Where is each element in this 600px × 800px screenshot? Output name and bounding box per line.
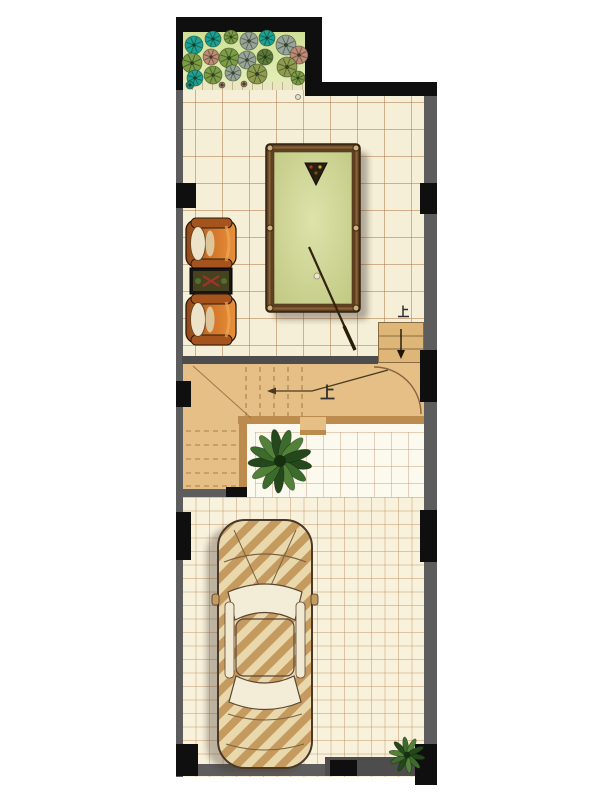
car-window-right: [296, 602, 305, 678]
armchair-bottom: [186, 294, 236, 345]
car-roof: [236, 619, 294, 676]
entry-steps-arrowhead: [397, 350, 405, 359]
billiard-table: [266, 144, 368, 350]
billiard-cue-butt: [344, 326, 355, 350]
stair-break-line: [193, 366, 251, 418]
cue-ball: [314, 273, 320, 279]
car-mirror-left: [212, 594, 219, 605]
side-table: [190, 268, 232, 294]
stair-direction-arrowhead: [267, 388, 276, 395]
column-marker-dot: [296, 95, 301, 100]
garden-plants: [182, 30, 308, 89]
armchair-top: [186, 218, 236, 269]
stair-direction-line: [276, 370, 388, 391]
floor-plan-canvas: 上 上: [0, 0, 600, 800]
car-window-left: [225, 602, 234, 678]
car-mirror-right: [311, 594, 318, 605]
stair-treads-lower: [186, 431, 240, 486]
plan-drawing-overlay: 上 上: [0, 0, 600, 800]
door-swing-arc: [374, 367, 421, 414]
car: [206, 520, 318, 772]
up-label-entry-steps: 上: [398, 306, 409, 317]
up-label-main-stair: 上: [321, 385, 335, 399]
